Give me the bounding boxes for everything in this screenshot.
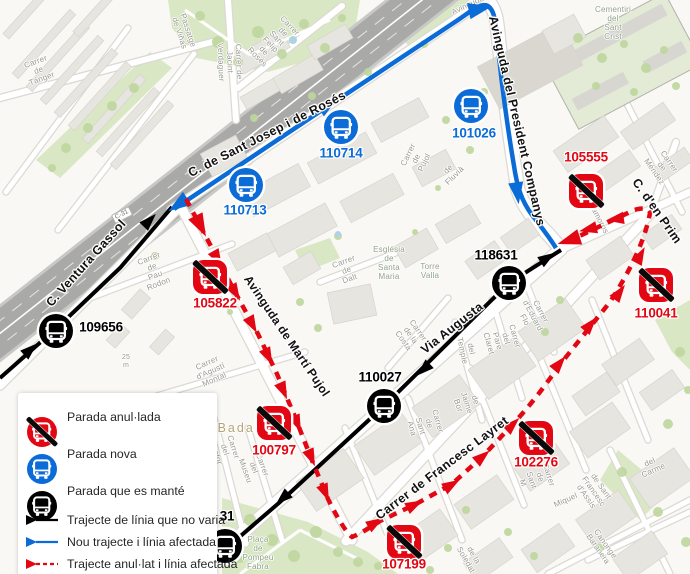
legend-line-cancelled-icon bbox=[25, 557, 59, 571]
legend-panel: Parada anul·ladaParada novaParada que es… bbox=[18, 393, 217, 574]
bus-stop-118631 bbox=[492, 266, 526, 300]
route-cancelled-arrow-icon bbox=[316, 482, 334, 503]
route-cancelled-arrow-icon bbox=[188, 212, 213, 240]
route-cancelled-arrow-icon bbox=[605, 212, 624, 227]
legend-label: Trajecte de línia que no varia bbox=[67, 513, 225, 527]
legend-icon-cell bbox=[25, 513, 59, 527]
legend-label: Parada anul·lada bbox=[67, 410, 161, 424]
bus-icon bbox=[233, 172, 260, 199]
stop-number-109656: 109656 bbox=[79, 320, 123, 335]
bus-stop-110027 bbox=[367, 389, 401, 423]
bus-icon bbox=[43, 318, 70, 345]
bus-stop-101026 bbox=[454, 89, 488, 123]
stop-number-110041: 110041 bbox=[634, 306, 677, 321]
bus-stop-110714 bbox=[324, 110, 358, 144]
stop-number-105822: 105822 bbox=[193, 296, 237, 311]
stop-number-105555: 105555 bbox=[564, 150, 608, 165]
route-cancelled-arrow-icon bbox=[274, 380, 293, 401]
stop-number-107199: 107199 bbox=[382, 557, 426, 572]
stop-number-102276: 102276 bbox=[514, 455, 558, 470]
route-cancelled-arrow-icon bbox=[259, 346, 278, 368]
legend-label: Parada nova bbox=[67, 447, 137, 461]
legend-stop-new-icon bbox=[27, 454, 57, 484]
legend-label: Nou trajecte i línia afectada bbox=[67, 535, 216, 549]
transit-diversion-map: Carrer de TángerPassatge de ViñasCarrer … bbox=[0, 0, 690, 574]
legend-rows: Parada anul·ladaParada novaParada que es… bbox=[25, 398, 217, 574]
stop-number-110713: 110713 bbox=[223, 203, 266, 218]
legend-item-trajecte-anul-lat-i-l-nia-afectada: Trajecte anul·lat i línia afectada bbox=[25, 553, 217, 574]
route-unchanged-arrow-icon bbox=[139, 210, 160, 231]
legend-item-trajecte-de-l-nia-que-no-varia: Trajecte de línia que no varia bbox=[25, 509, 217, 531]
route-cancelled-arrow-icon bbox=[288, 413, 306, 434]
bus-icon bbox=[328, 114, 355, 141]
stop-number-101026: 101026 bbox=[452, 126, 496, 141]
bus-stop-102276 bbox=[519, 421, 553, 455]
legend-label: Parada que es manté bbox=[67, 484, 185, 498]
stop-number-100797: 100797 bbox=[252, 443, 296, 458]
legend-stop-cancelled-icon bbox=[27, 417, 57, 447]
legend-icon-cell bbox=[25, 557, 59, 571]
legend-item-parada-anul-lada: Parada anul·lada bbox=[25, 398, 217, 435]
bus-icon bbox=[496, 270, 523, 297]
bus-stop-109656 bbox=[39, 314, 73, 348]
stop-number-118631: 118631 bbox=[474, 248, 517, 263]
route-cancelled-arrow-icon bbox=[555, 229, 582, 251]
bus-stop-107199 bbox=[387, 525, 421, 559]
bus-icon bbox=[30, 457, 53, 480]
bus-stop-105822 bbox=[193, 260, 227, 294]
legend-item-nou-trajecte-i-l-nia-afectada: Nou trajecte i línia afectada bbox=[25, 531, 217, 553]
bus-icon bbox=[458, 93, 485, 120]
bus-stop-110041 bbox=[639, 268, 673, 302]
bus-stop-110713 bbox=[229, 168, 263, 202]
legend-icon-cell bbox=[25, 535, 59, 549]
legend-line-new-icon bbox=[25, 535, 59, 549]
legend-label: Trajecte anul·lat i línia afectada bbox=[67, 557, 237, 571]
bus-stop-100797 bbox=[257, 406, 291, 440]
bus-icon bbox=[371, 393, 398, 420]
stop-number-110027: 110027 bbox=[358, 370, 401, 385]
bus-stop-105555 bbox=[569, 174, 603, 208]
legend-line-unchanged-icon bbox=[25, 513, 59, 527]
stop-number-110714: 110714 bbox=[319, 146, 362, 161]
